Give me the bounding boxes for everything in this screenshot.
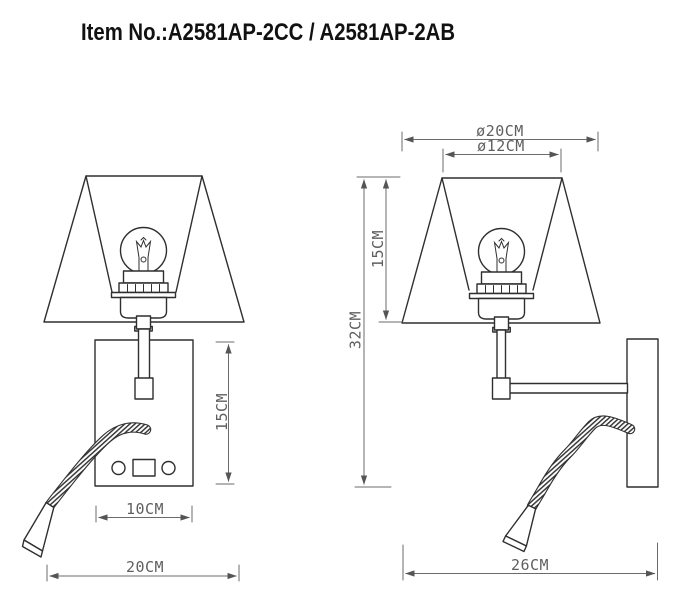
stem-front: [139, 329, 150, 379]
switch-button-left: [112, 462, 125, 475]
dim-front-overall-width: 20CM: [47, 558, 239, 581]
gooseneck-arm-side: [503, 421, 630, 552]
dim-label-shade-height: 15CM: [369, 230, 387, 268]
stem-side: [497, 330, 506, 379]
mounting-arm-side: [509, 384, 628, 394]
switch-rocker: [133, 460, 155, 477]
side-view: ø20CM ø12CM 15CM 32CM 26CM: [347, 122, 659, 580]
wall-lamp-dimension-drawing: Item No.:A2581AP-2CC / A2581AP-2AB 15CM: [0, 0, 680, 596]
front-view: 15CM 10CM 20CM: [23, 176, 245, 581]
dim-side-overall-depth: 26CM: [403, 543, 658, 580]
arm-joint-block-side: [493, 378, 511, 399]
dim-side-overall-height: 32CM: [347, 180, 392, 488]
dim-label-overall-depth: 26CM: [511, 556, 549, 574]
dim-label-front-overall-width: 20CM: [126, 558, 164, 576]
dim-label-front-plate-width: 10CM: [126, 500, 164, 518]
switch-panel: [112, 460, 175, 477]
dim-front-plate-height: 15CM: [213, 342, 234, 484]
technical-drawing-page: Item No.:A2581AP-2CC / A2581AP-2AB 15CM: [0, 0, 680, 596]
stem-block-front: [135, 378, 153, 399]
dim-label-shade-top-diameter: ø12CM: [477, 137, 525, 155]
switch-button-right: [162, 462, 175, 475]
dim-label-front-plate-height: 15CM: [213, 393, 231, 431]
dim-front-plate-width: 10CM: [96, 500, 192, 522]
page-title: Item No.:A2581AP-2CC / A2581AP-2AB: [81, 19, 455, 46]
wall-plate-side: [627, 339, 658, 487]
dim-side-shade-top-diameter: ø12CM: [443, 137, 561, 172]
dim-label-overall-height: 32CM: [347, 311, 365, 349]
